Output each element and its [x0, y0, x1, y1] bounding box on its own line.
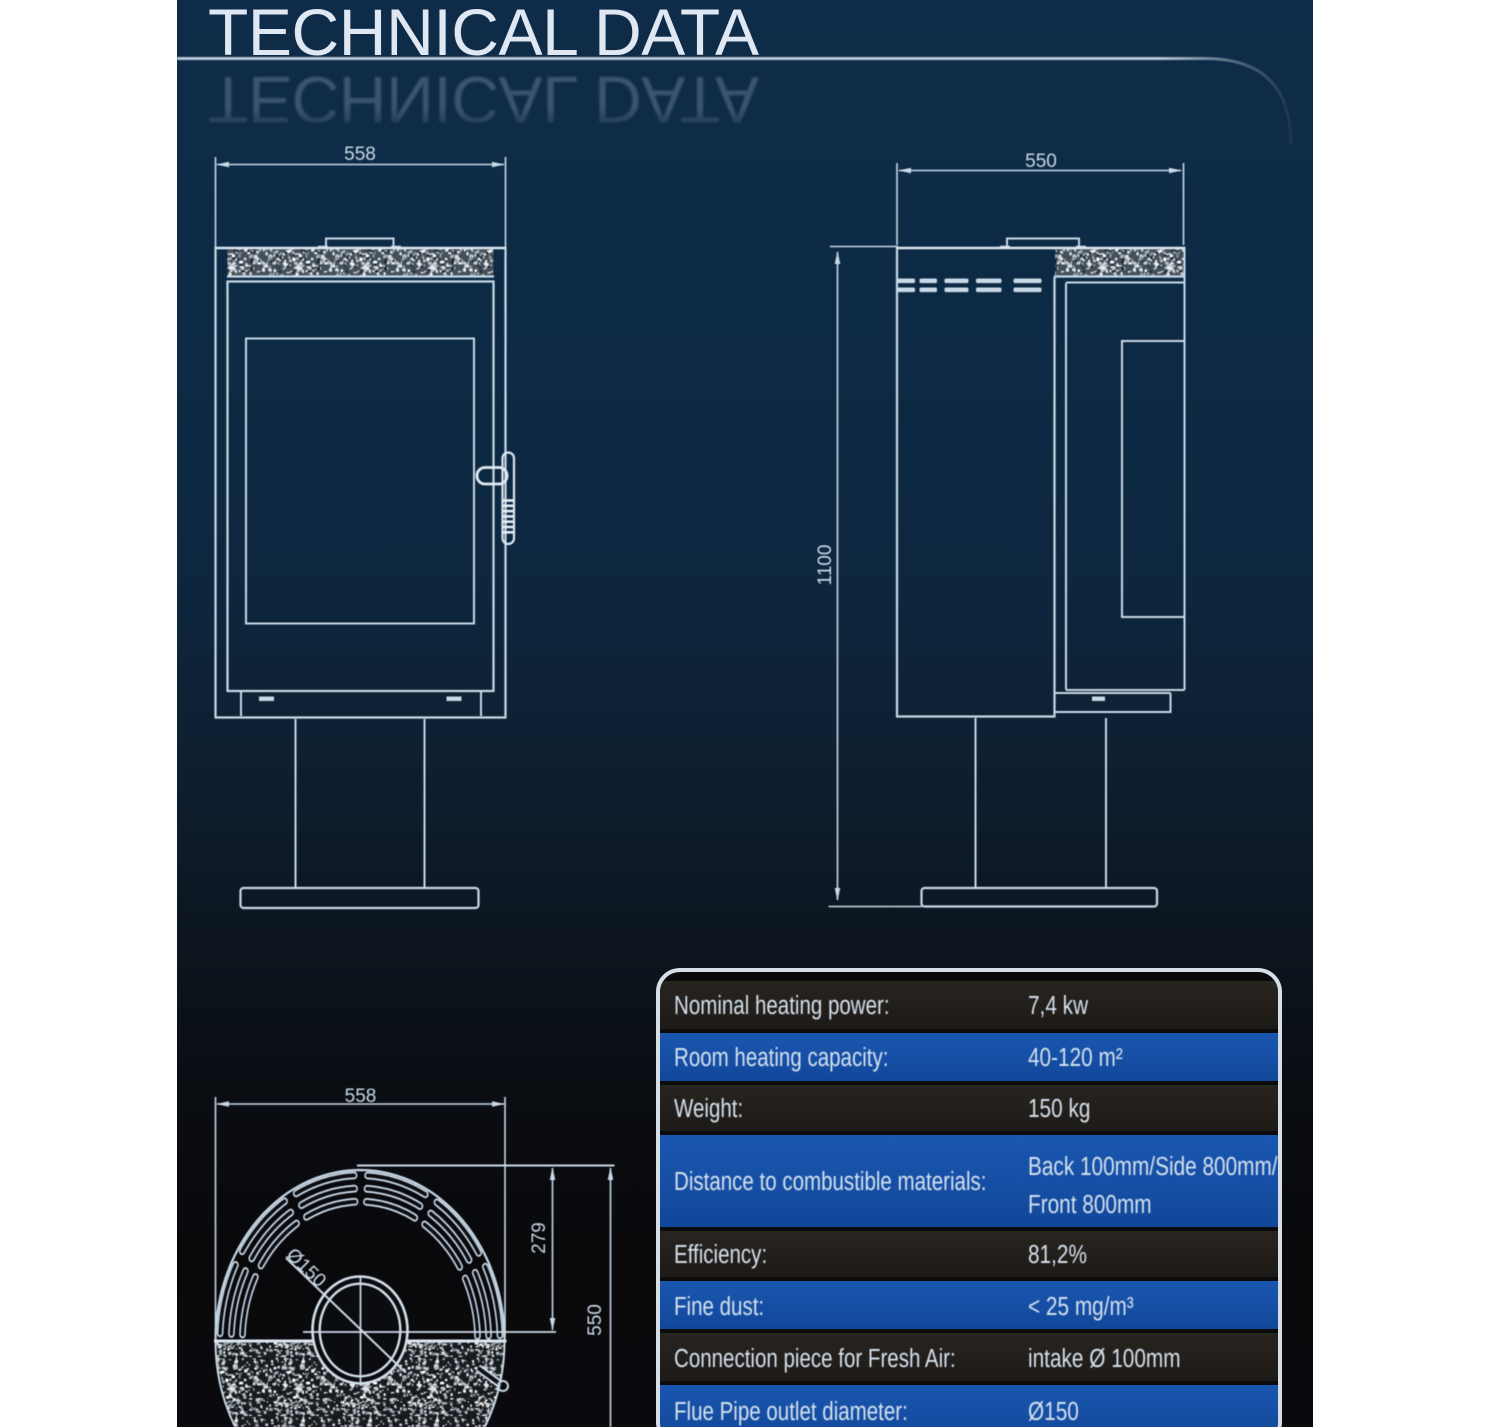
- svg-text:Connection piece for Fresh Air: Connection piece for Fresh Air:: [674, 1344, 956, 1373]
- svg-text:Fine dust:: Fine dust:: [674, 1292, 764, 1321]
- svg-text:< 25 mg/m³: < 25 mg/m³: [1028, 1292, 1134, 1321]
- svg-text:150 kg: 150 kg: [1028, 1094, 1090, 1123]
- svg-text:Ø150: Ø150: [282, 1244, 330, 1291]
- svg-text:81,2%: 81,2%: [1028, 1240, 1087, 1269]
- svg-text:Ø150: Ø150: [1028, 1397, 1079, 1426]
- svg-text:Front 800mm: Front 800mm: [1028, 1190, 1152, 1219]
- svg-text:279: 279: [529, 1222, 550, 1254]
- svg-text:Weight:: Weight:: [674, 1094, 743, 1123]
- svg-text:1100: 1100: [815, 545, 836, 586]
- svg-text:Flue Pipe outlet diameter:: Flue Pipe outlet diameter:: [674, 1397, 908, 1426]
- svg-text:550: 550: [585, 1304, 606, 1336]
- svg-text:Distance to combustible materi: Distance to combustible materials:: [674, 1167, 986, 1196]
- svg-text:Efficiency:: Efficiency:: [674, 1240, 767, 1269]
- svg-text:intake Ø 100mm: intake Ø 100mm: [1028, 1344, 1181, 1373]
- svg-text:Back 100mm/Side 800mm/: Back 100mm/Side 800mm/: [1028, 1152, 1278, 1181]
- svg-text:550: 550: [1025, 151, 1057, 172]
- svg-text:558: 558: [344, 144, 376, 165]
- svg-text:Nominal heating power:: Nominal heating power:: [674, 991, 890, 1020]
- svg-text:Room heating capacity:: Room heating capacity:: [674, 1043, 888, 1072]
- svg-text:40-120 m²: 40-120 m²: [1028, 1043, 1123, 1072]
- svg-text:7,4 kw: 7,4 kw: [1028, 991, 1089, 1020]
